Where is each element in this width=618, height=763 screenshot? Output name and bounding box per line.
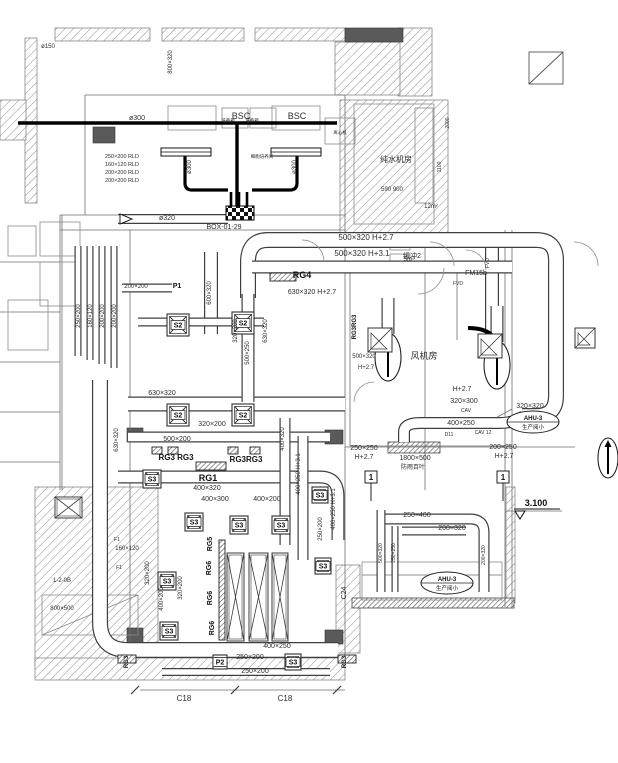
drawing-label: RG3	[124, 655, 130, 668]
drawing-label: 250×200	[241, 668, 269, 675]
drawing-label: 320×320	[516, 403, 544, 410]
diffuser-s3: S3	[143, 470, 161, 488]
corner-grille	[575, 328, 595, 348]
diffuser-s2: S2	[232, 404, 254, 426]
diffuser-label: S3	[316, 493, 325, 500]
tag-line1: AHU-3	[438, 577, 457, 583]
drawing-label: 160×120	[88, 304, 94, 328]
drawing-label: 3.100	[525, 498, 548, 508]
keyplan-symbol-icon	[529, 52, 563, 84]
equipment-cabinet	[272, 553, 288, 641]
drawing-label: H+2.7	[355, 454, 374, 461]
drawing-label: C18	[278, 694, 293, 703]
drawing-label: 320×300	[450, 398, 478, 405]
slot-diffuser	[271, 148, 321, 156]
drawing-label: D11	[445, 432, 454, 438]
louver-hatch	[352, 598, 514, 608]
drawing-label: 250×200	[76, 304, 82, 328]
corner-grille	[478, 334, 502, 358]
drawing-label: C24	[341, 586, 348, 599]
dimension-tick	[131, 686, 139, 694]
section-mark-label: 1	[369, 473, 374, 482]
door-swing-arc	[354, 382, 374, 402]
drawing-label: CAV 12	[475, 430, 492, 436]
drawing-label: 细胞培养间	[251, 153, 274, 160]
column-block	[93, 127, 115, 143]
diffuser-s3: S3	[272, 516, 290, 534]
drawing-label: 800×500	[50, 606, 74, 612]
drawing-label: 纯水机房	[380, 154, 412, 164]
drawing-label: BOX-01-29	[206, 224, 241, 231]
drawing-label: F1	[114, 537, 120, 543]
drawing-label: 防雨百叶	[401, 463, 425, 471]
diffuser-label: S2	[239, 413, 248, 420]
drawing-label: 12m²	[424, 204, 438, 210]
drawing-label: 250×400	[403, 512, 431, 519]
drawing-label: 630×320	[148, 390, 176, 397]
drawing-label: RG3RG3	[230, 455, 263, 464]
diffuser-s3: S3	[185, 513, 203, 531]
diffuser-s3: S3	[285, 654, 301, 670]
drawing-label: 500×320	[378, 543, 384, 563]
drawing-label: 400×250 H+3.1	[331, 488, 337, 530]
drawing-label: RG6	[209, 621, 216, 636]
equipment-tag: AHU-3生产阅小	[421, 572, 473, 594]
drawing-label: 250×200	[236, 654, 264, 661]
furniture-box	[8, 300, 48, 350]
column-block	[127, 628, 143, 644]
drawing-label: FVD	[485, 258, 491, 268]
hatched-wall	[55, 28, 150, 41]
diffuser-label: S2	[174, 323, 183, 330]
diffuser-s2: S2	[167, 314, 189, 336]
furniture-box	[168, 106, 216, 130]
drawing-label: RG5	[207, 537, 214, 552]
equipment-cabinet	[55, 497, 82, 518]
drawing-label: 200×200	[112, 304, 118, 328]
drawing-label: 1-2-0B	[53, 578, 71, 584]
drawing-label: 320×200	[198, 421, 226, 428]
drawing-label: 250×200	[318, 517, 324, 541]
drawing-label: H+2.7	[495, 453, 514, 460]
drawing-label: 400×320	[193, 485, 221, 492]
louver-hatch	[388, 442, 440, 453]
diffuser-p2: P2	[213, 655, 227, 669]
drawing-label: BSC	[288, 111, 307, 121]
drawing-label: 200×250	[489, 444, 517, 451]
hatched-wall	[340, 100, 448, 238]
drawing-label: 5m²	[404, 257, 414, 263]
drawing-label: 2000	[445, 117, 451, 128]
diffuser-s3: S3	[315, 558, 331, 574]
black-supply-duct	[252, 155, 297, 190]
drawing-label: ø320	[159, 215, 175, 222]
drawing-label: 590 900	[381, 187, 403, 193]
diffuser-s3: S3	[312, 487, 328, 503]
drawing-label: RG1	[199, 473, 218, 483]
drawing-label: 500×320 H+3.1	[334, 249, 390, 258]
tag-line2: 生产阅小	[522, 423, 545, 431]
drawing-label: 250×250	[391, 543, 397, 563]
drawing-label: 320×200	[145, 561, 151, 585]
drawing-label: 200×200	[100, 304, 106, 328]
drawing-label: 500×320	[352, 354, 376, 360]
drawing-label: ø300	[129, 115, 145, 122]
drawing-label: 200×320	[438, 525, 466, 532]
drawing-label: 600×320	[207, 281, 213, 305]
drawing-label: RG3RG3	[352, 314, 358, 339]
drawing-label: 1800×500	[399, 455, 430, 462]
drawing-label: 200×200	[124, 284, 148, 290]
equipment-cabinet	[227, 553, 244, 641]
diffuser-label: S3	[163, 579, 172, 586]
drawing-label: 320×200	[233, 319, 239, 343]
drawing-label: 1100	[437, 161, 443, 172]
return-grille	[228, 447, 238, 454]
drawing-label: FM15b	[465, 270, 487, 277]
drawing-label: 400×200	[253, 496, 281, 503]
level-mark-icon	[515, 511, 525, 519]
drawing-label: F1	[116, 565, 122, 571]
diffuser-label: S3	[148, 477, 157, 484]
diffuser-label: P2	[216, 660, 225, 667]
drawing-label: RG6	[207, 591, 214, 606]
hatched-wall	[25, 38, 37, 203]
drawing-label: 500×320 H+2.7	[338, 233, 394, 242]
diffuser-label: S3	[190, 520, 199, 527]
diffuser-label: S2	[174, 413, 183, 420]
slot-diffuser	[161, 148, 211, 156]
cad-drawing-canvas: S2S2S2S2S3S3S3S3S3S3S3S3S3P2AHU-3生产阅小AHU…	[0, 0, 618, 763]
fan-symbol	[598, 438, 618, 478]
drawing-label: 200×320	[481, 545, 487, 565]
drawing-label: 250×200 RLD	[105, 154, 139, 160]
diffuser-s3: S3	[230, 516, 248, 534]
drawing-label: RG3	[342, 655, 348, 668]
diffuser-label: S3	[319, 564, 328, 571]
drawing-label: C18	[177, 694, 192, 703]
drawing-label: 800×320	[168, 50, 174, 74]
hatched-wall	[255, 28, 345, 41]
drawing-label: H+2.7	[358, 365, 375, 371]
drawing-label: RG6	[206, 561, 213, 576]
diffuser-label: S3	[277, 523, 286, 530]
drawing-label: 630×320 H+2.7	[288, 289, 336, 296]
section-mark-label: 1	[501, 473, 506, 482]
hatched-wall	[506, 487, 515, 603]
drawing-label: 离心机	[333, 129, 347, 136]
equipment-tag: AHU-3生产阅小	[507, 411, 559, 433]
diffuser-label: S2	[239, 321, 248, 328]
diffuser-label: S3	[289, 660, 298, 667]
drawing-label: ø300	[292, 160, 298, 174]
furniture-box	[8, 226, 36, 256]
diffuser-s2: S2	[167, 404, 189, 426]
return-grille	[250, 447, 260, 454]
drawing-label: P1	[173, 283, 182, 290]
hvac-duct-plan: S2S2S2S2S3S3S3S3S3S3S3S3S3P2AHU-3生产阅小AHU…	[0, 0, 618, 763]
drawing-label: 培养箱	[245, 117, 259, 124]
drawing-label: 400×250 H+3.1	[296, 453, 302, 495]
drawing-label: 风机房	[410, 350, 437, 361]
drawing-label: ø150	[41, 44, 55, 50]
hatched-wall	[162, 28, 244, 41]
drawing-label: 160×120	[115, 546, 139, 552]
diffuser-s3: S3	[160, 622, 178, 640]
drawing-label: ø300	[187, 160, 193, 174]
drawing-label: 400×300	[201, 496, 229, 503]
drawing-label: 200×200 RLD	[105, 178, 139, 184]
door-swing-arc	[574, 242, 598, 266]
drawing-label: H+2.7	[453, 386, 472, 393]
drawing-label: RG4	[293, 270, 312, 280]
hatched-wall	[0, 100, 26, 140]
return-grille	[219, 540, 225, 640]
junction-box	[226, 206, 254, 220]
diffuser-label: S3	[235, 523, 244, 530]
drawing-label: 250×250	[350, 445, 378, 452]
drawing-label: 630×320	[114, 428, 120, 452]
drawing-label: 160×120 RLD	[105, 162, 139, 168]
drawing-label: 200×200 RLD	[105, 170, 139, 176]
tag-line1: AHU-3	[524, 416, 543, 422]
diffuser-label: S3	[165, 629, 174, 636]
return-grille	[196, 462, 226, 470]
drawing-label: 400×200	[159, 587, 165, 611]
drawing-label: 400×320	[280, 427, 286, 451]
hatched-wall	[335, 42, 400, 95]
drawing-label: FVD	[453, 281, 463, 287]
drawing-label: 320×200	[178, 576, 184, 600]
drawing-label: RG3 RG3	[158, 453, 194, 462]
drawing-label: 630×320	[263, 319, 269, 343]
column-block	[345, 28, 403, 42]
section-mark: 1	[365, 471, 377, 501]
drawing-label: 400×250	[447, 420, 475, 427]
drawing-label: 500×250	[245, 341, 251, 365]
drawing-label: 500×200	[163, 436, 191, 443]
equipment-cabinet	[249, 553, 268, 641]
drawing-label: 培养箱	[221, 117, 235, 124]
drawing-label: 400×250	[263, 643, 291, 650]
tag-line2: 生产阅小	[436, 584, 459, 592]
corner-grille	[368, 328, 392, 352]
column-block	[325, 630, 343, 644]
drawing-label: CAV	[461, 408, 472, 414]
